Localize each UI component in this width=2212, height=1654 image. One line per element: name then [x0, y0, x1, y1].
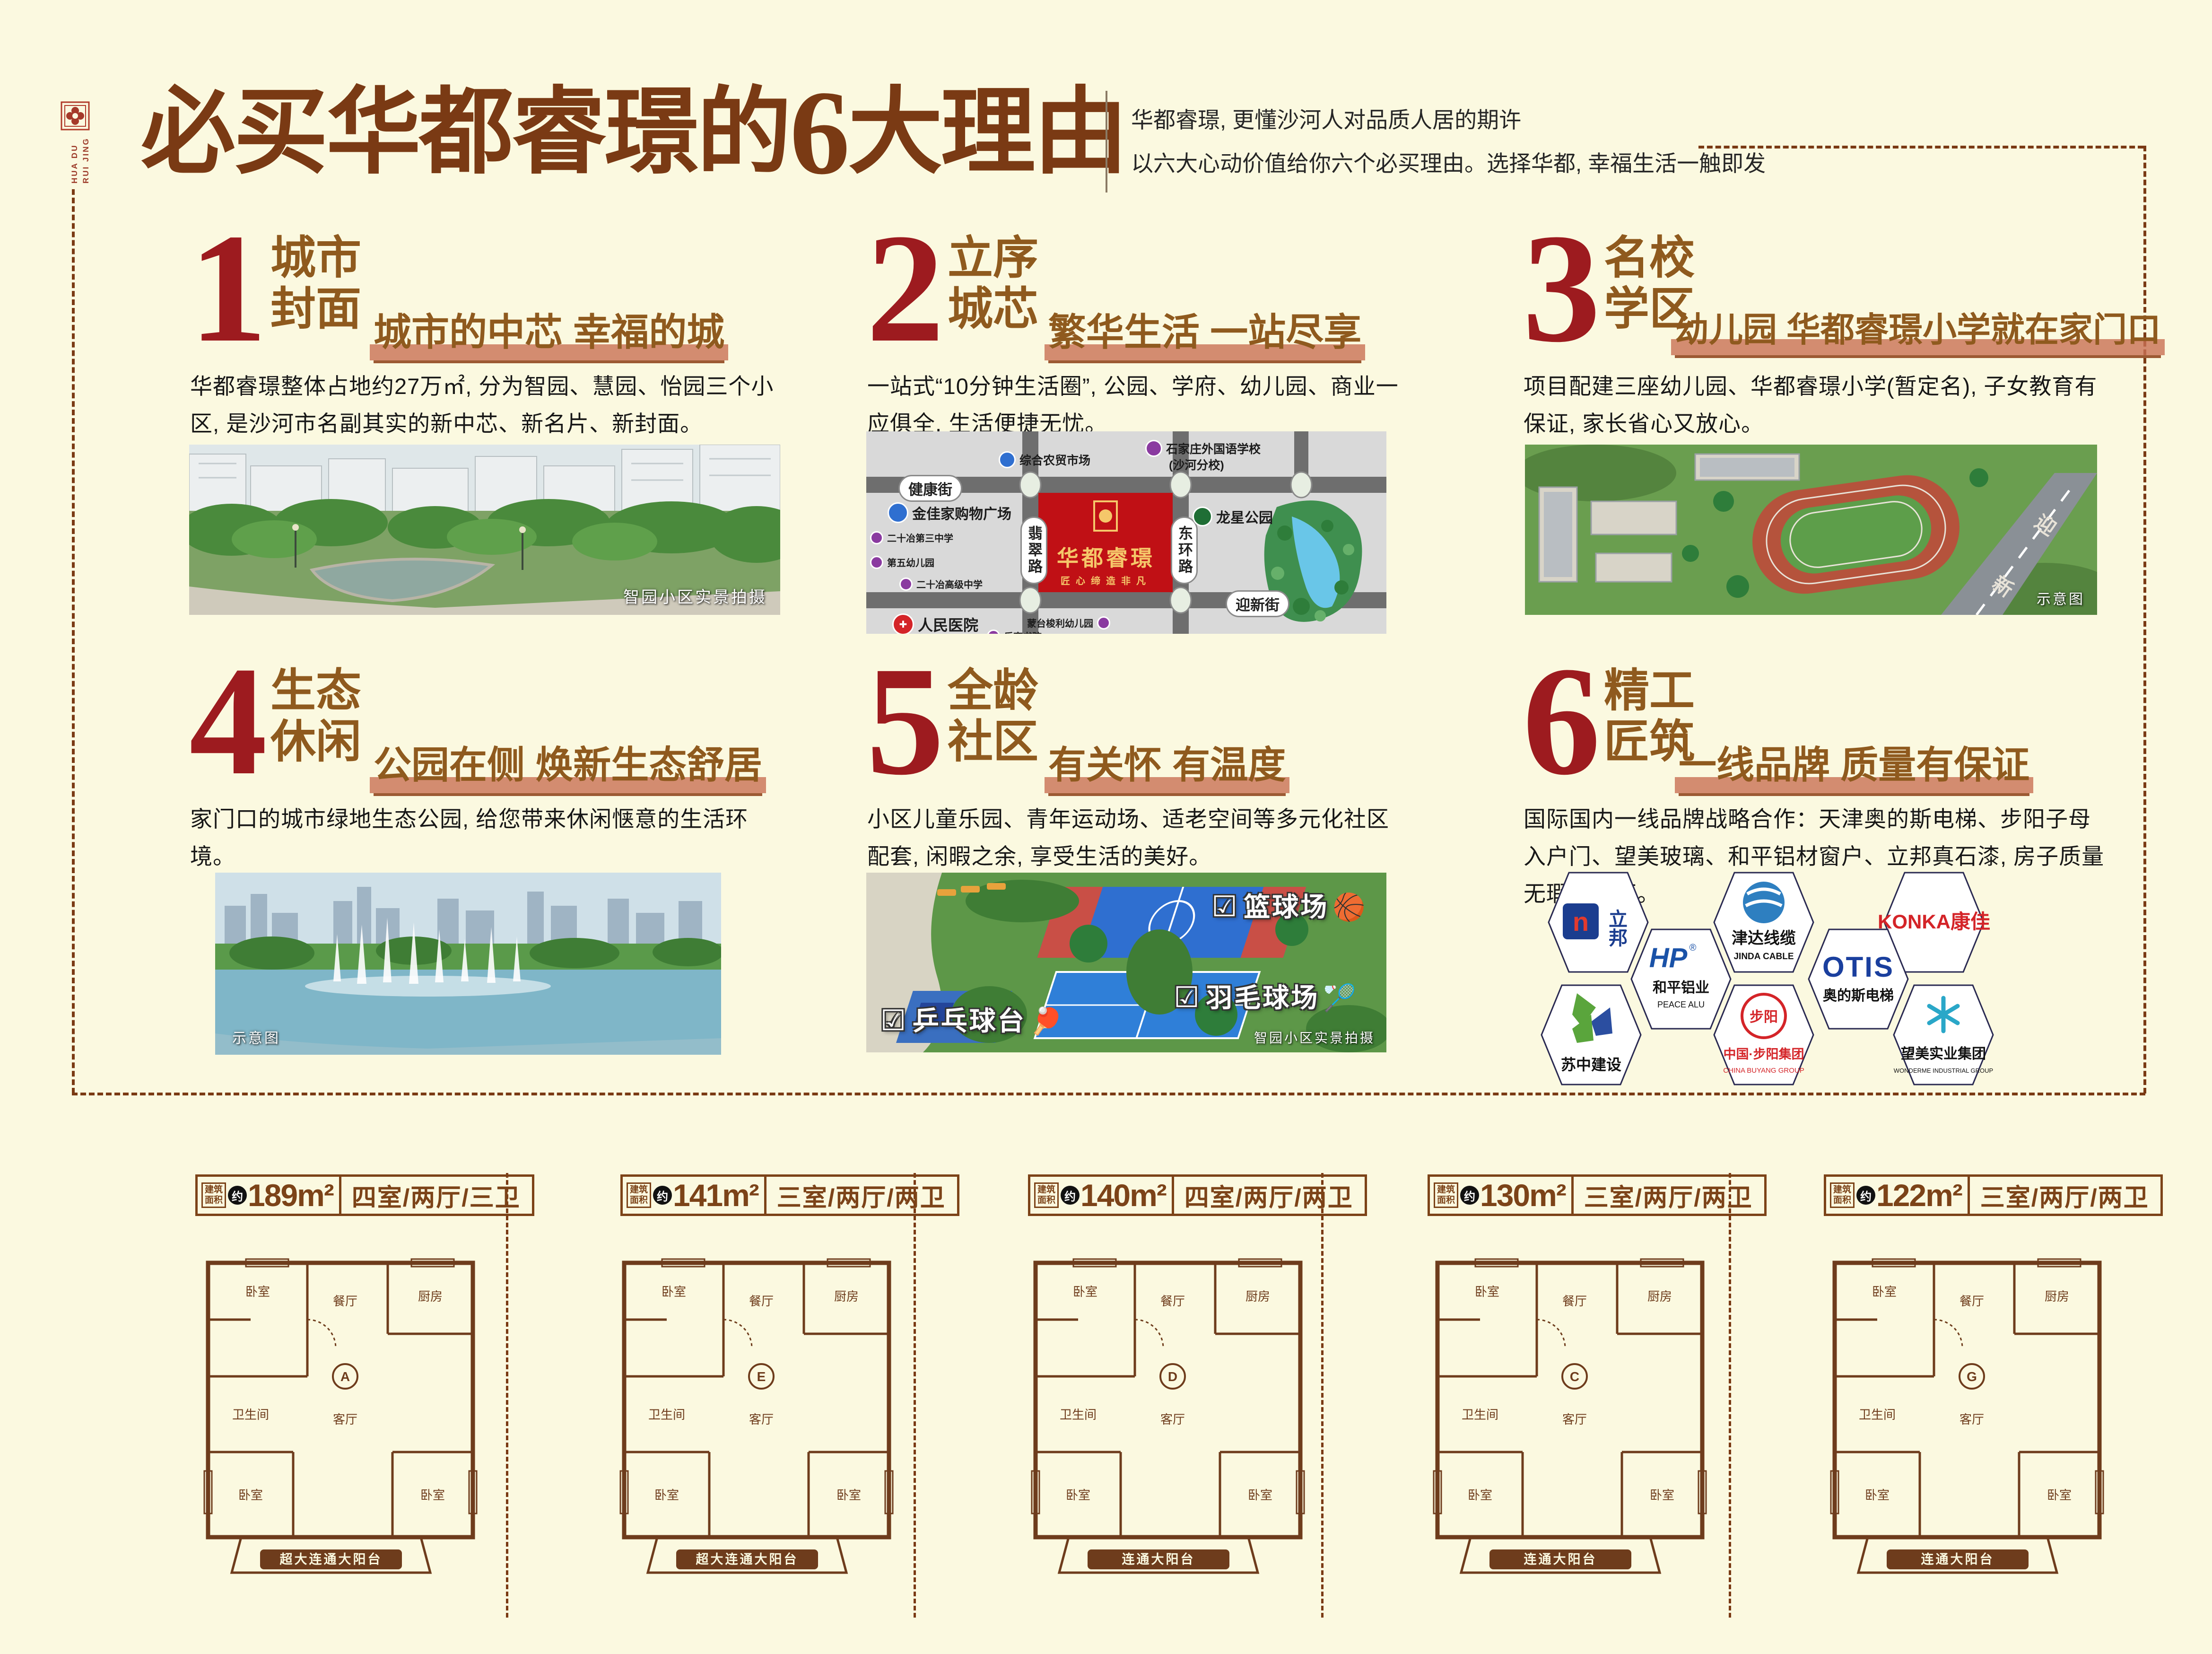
svg-text:卧室: 卧室 [1468, 1488, 1492, 1502]
brand-name: 苏中建设 [1561, 1056, 1621, 1073]
poi-label: 龙星公园 [1216, 506, 1273, 527]
svg-text:卧室: 卧室 [1066, 1488, 1090, 1502]
svg-text:卫生间: 卫生间 [232, 1408, 269, 1422]
poi-label: 二十冶高级中学 [916, 577, 983, 591]
svg-text:卧室: 卧室 [1248, 1488, 1272, 1502]
svg-text:餐厅: 餐厅 [1562, 1294, 1587, 1308]
sports-courts-photo: ☑篮球场🏀 ☑羽毛球场🏸 ☑乒乓球台🏓 智园小区实景拍摄 [866, 873, 1386, 1052]
registered-icon: ® [1689, 943, 1697, 953]
approx-badge: 约 [1856, 1186, 1875, 1205]
reason-subtitle: 有关怀 有温度 [1048, 735, 1286, 796]
reason-subtitle: 繁华生活 一站尽享 [1048, 302, 1361, 363]
park-icon [1193, 507, 1212, 526]
svg-text:卫生间: 卫生间 [1060, 1408, 1097, 1422]
dashed-border-left [72, 189, 75, 1094]
svg-text:A: A [340, 1369, 350, 1384]
svg-text:超大连通大阳台: 超大连通大阳台 [280, 1552, 383, 1566]
poi-label: 蒙台梭利幼儿园 [1027, 616, 1093, 630]
header-divider [1106, 91, 1107, 193]
svg-text:客厅: 客厅 [749, 1412, 774, 1426]
svg-text:餐厅: 餐厅 [333, 1294, 357, 1308]
poi-label: 金佳家购物广场 [912, 502, 1011, 523]
brand-name: 和平铝业 [1653, 980, 1709, 996]
checkbox-icon: ☑ [1174, 981, 1201, 1013]
brand-name-en: WONDERME INDUSTRIAL GROUP [1894, 1067, 1993, 1074]
svg-text:连通大阳台: 连通大阳台 [1921, 1552, 1994, 1566]
park-fountain-photo: 示意图 [215, 873, 721, 1055]
checkbox-icon: ☑ [880, 1005, 908, 1036]
photo-caption: 智园小区实景拍摄 [1254, 1028, 1375, 1047]
checkbox-icon: ☑ [1211, 891, 1239, 922]
svg-text:E: E [757, 1369, 766, 1384]
reason-5-all-age-community: 5 全龄 社区 有关怀 有温度 小区儿童乐园、青年运动场、适老空间等多元化社区配… [866, 655, 1410, 1055]
reason-4-eco-leisure: 4 生态 休闲 公园在侧 焕新生态舒居 家门口的城市绿地生态公园, 给您带来休闲… [189, 655, 780, 1055]
floorplan-4-label: 建筑面积 约 130m² 三室/两厅/两卫 [1428, 1174, 1767, 1216]
badminton-court-label: ☑羽毛球场🏸 [1174, 977, 1358, 1015]
svg-text:连通大阳台: 连通大阳台 [1122, 1552, 1195, 1566]
svg-text:餐厅: 餐厅 [749, 1294, 774, 1308]
map-project-name: 华都睿璟 [1040, 541, 1172, 572]
reason-subtitle: 城市的中芯 幸福的城 [374, 302, 724, 363]
svg-text:卧室: 卧室 [662, 1285, 686, 1299]
market-icon [999, 451, 1016, 468]
reason-number: 3 [1523, 222, 1601, 355]
approx-badge: 约 [653, 1186, 672, 1205]
brand-name-en: JINDA CABLE [1733, 952, 1794, 962]
school-icon [870, 556, 883, 569]
poi-label: (沙河分校) [1169, 456, 1224, 473]
road-label-yingxin: 迎新街 [1226, 590, 1289, 617]
poi-label: 二十冶第三中学 [887, 531, 953, 544]
location-map: 华都睿璟 匠心缔造非凡 健康街 迎新街 翡翠路 东环路 综合农贸市场 石家庄外国… [866, 431, 1386, 634]
brand-konka: KONKA康佳 [1878, 910, 1990, 933]
map-project-tagline: 匠心缔造非凡 [1040, 573, 1172, 587]
svg-text:卧室: 卧室 [836, 1488, 861, 1502]
poi-label: 综合农贸市场 [1019, 451, 1090, 468]
community-photo: 智园小区实景拍摄 [189, 445, 780, 615]
reason-2-location: 2 立序 城芯 繁华生活 一站尽享 一站式“10分钟生活圈”, 公园、学府、幼儿… [866, 222, 1410, 615]
logo-line2: RUI JING [81, 127, 91, 184]
reason-number: 2 [866, 222, 944, 355]
brand-name-en: CHINA BUYANG GROUP [1723, 1067, 1804, 1075]
mall-icon [888, 502, 908, 523]
page-title: 必买华都睿璟的6大理由 [141, 61, 1110, 205]
svg-text:卧室: 卧室 [654, 1488, 679, 1502]
floorplan-separator [506, 1173, 508, 1618]
svg-text:D: D [1168, 1369, 1177, 1384]
floorplan-layout: 四室/两厅/三卫 [341, 1178, 531, 1213]
otis-mark: OTIS [1822, 951, 1894, 983]
svg-text:餐厅: 餐厅 [1959, 1294, 1984, 1308]
floorplan-separator [914, 1173, 916, 1618]
logo-line1: HUA DU [70, 127, 79, 184]
svg-text:客厅: 客厅 [333, 1412, 357, 1426]
basketball-icon: 🏀 [1332, 892, 1367, 922]
poster-canvas: HUA DU RUI JING 必买华都睿璟的6大理由 华都睿璟, 更懂沙河人对… [0, 0, 2212, 1654]
svg-text:卧室: 卧室 [1650, 1488, 1674, 1502]
reason-subtitle: 一线品牌 质量有保证 [1679, 735, 2029, 796]
svg-text:卧室: 卧室 [1865, 1488, 1890, 1502]
svg-text:卧室: 卧室 [238, 1488, 263, 1502]
peace-mark: HP [1649, 943, 1688, 973]
approx-badge: 约 [1061, 1186, 1080, 1205]
pingpong-table-label: ☑乒乓球台🏓 [880, 1000, 1065, 1038]
svg-text:客厅: 客厅 [1160, 1412, 1185, 1426]
floorplan-1-drawing: 卧室 厨房 餐厅 卫生间 客厅 卧室 卧室 A 超大连通大阳台 [189, 1234, 492, 1606]
road-label-jiankang: 健康街 [898, 475, 962, 502]
academy-icon [987, 630, 1000, 634]
subtitle-line2: 以六大心动价值给你六个必买理由。选择华都, 幸福生活一触即发 [1131, 142, 1766, 185]
svg-text:卧室: 卧室 [1073, 1285, 1097, 1299]
pingpong-icon: 🏓 [1030, 1006, 1065, 1036]
svg-text:G: G [1967, 1369, 1977, 1384]
svg-text:客厅: 客厅 [1562, 1412, 1587, 1426]
svg-text:卫生间: 卫生间 [648, 1408, 685, 1422]
approx-badge: 约 [1460, 1186, 1479, 1205]
svg-text:超大连通大阳台: 超大连通大阳台 [696, 1552, 799, 1566]
brand-name: 津达线缆 [1732, 929, 1796, 947]
reason-title: 立序 城芯 [948, 233, 1038, 334]
kindergarten-icon [1097, 616, 1110, 630]
floorplan-5-label: 建筑面积 约 122m² 三室/两厅/两卫 [1824, 1174, 2163, 1216]
svg-text:厨房: 厨房 [2045, 1289, 2069, 1304]
reason-subtitle: 幼儿园 华都睿璟小学就在家门口 [1675, 302, 2161, 358]
floorplan-layout: 三室/两厅/两卫 [1574, 1178, 1763, 1213]
buyang-mark: 步阳 [1750, 1009, 1778, 1025]
reason-number: 4 [189, 655, 267, 788]
reason-title: 生态 休闲 [270, 665, 361, 767]
brand-logos-honeycomb: n 立邦 津达线缆 JINDA CABLE KONKA康佳 HP ® 和 [1537, 866, 2066, 1088]
svg-text:卧室: 卧室 [245, 1285, 270, 1299]
school-icon [870, 531, 883, 544]
approx-badge: 约 [228, 1186, 247, 1205]
floorplan-3-label: 建筑面积 约 140m² 四室/两厅/两卫 [1028, 1174, 1367, 1216]
brand-name: 奥的斯电梯 [1823, 988, 1894, 1004]
svg-text:客厅: 客厅 [1959, 1412, 1984, 1426]
reason-number: 1 [189, 222, 267, 355]
reason-description: 小区儿童乐园、青年运动场、适老空间等多元化社区配套, 闲暇之余, 享受生活的美好… [867, 801, 1406, 875]
kindergarten-icon [899, 578, 913, 591]
floorplan-layout: 三室/两厅/两卫 [766, 1178, 956, 1213]
floorplan-2-drawing: 卧室 厨房 餐厅 卫生间 客厅 卧室 卧室 E 超大连通大阳台 [605, 1234, 908, 1606]
svg-text:厨房: 厨房 [418, 1289, 443, 1304]
svg-text:卧室: 卧室 [2047, 1488, 2072, 1502]
floorplan-4-drawing: 卧室 厨房 餐厅 卫生间 客厅 卧室 卧室 C 连通大阳台 [1419, 1234, 1721, 1606]
dashed-border-top [1698, 146, 2143, 149]
poi-label: 乐育书院 [1004, 629, 1042, 634]
poi-label: 人民医院 [918, 613, 978, 634]
reason-number: 6 [1523, 655, 1601, 788]
svg-text:卫生间: 卫生间 [1859, 1408, 1896, 1422]
brand-name: 立邦 [1606, 909, 1627, 947]
reason-3-school-district: 3 名校 学区 幼儿园 华都睿璟小学就在家门口 项目配建三座幼儿园、华都睿璟小学… [1523, 222, 2118, 615]
svg-text:卧室: 卧室 [1872, 1285, 1897, 1299]
poi-label: 石家庄外国语学校 [1166, 440, 1261, 457]
floorplan-area: 140m² [1080, 1177, 1172, 1213]
brand-name-en: PEACE ALU [1657, 1000, 1705, 1009]
svg-text:厨房: 厨房 [1647, 1289, 1672, 1304]
photo-caption: 智园小区实景拍摄 [623, 584, 767, 607]
school-aerial-rendering: 迎 新 示意图 [1525, 445, 2097, 615]
brand-otis: OTIS 奥的斯电梯 [1822, 951, 1894, 1004]
basketball-court-label: ☑篮球场🏀 [1211, 886, 1367, 924]
rendering-caption: 示意图 [232, 1026, 280, 1047]
floorplan-separator [1729, 1173, 1731, 1618]
floorplan-separator [1321, 1173, 1324, 1618]
svg-text:C: C [1570, 1369, 1579, 1384]
floorplan-layout: 四室/两厅/两卫 [1174, 1178, 1364, 1213]
reason-1-city-cover: 1 城市 封面 城市的中芯 幸福的城 华都睿璟整体占地约27万㎡, 分为智园、慧… [189, 222, 780, 615]
svg-text:卧室: 卧室 [1475, 1285, 1499, 1299]
reason-number: 5 [866, 655, 944, 788]
floorplan-area: 122m² [1876, 1177, 1968, 1213]
subtitle-line1: 华都睿璟, 更懂沙河人对品质人居的期许 [1131, 98, 1766, 142]
svg-text:厨房: 厨房 [1245, 1289, 1270, 1304]
reason-title: 全龄 社区 [948, 665, 1038, 767]
reason-title: 城市 封面 [270, 233, 361, 334]
floorplan-2-label: 建筑面积 约 141m² 三室/两厅/两卫 [620, 1174, 959, 1216]
poi-label: 第五幼儿园 [887, 555, 934, 569]
reason-6-quality-brands: 6 精工 匠筑 一线品牌 质量有保证 国际国内一线品牌战略合作：天津奥的斯电梯、… [1523, 655, 2118, 1055]
dashed-border-right [2143, 146, 2146, 1094]
floorplan-area: 189m² [248, 1177, 339, 1213]
brand-name: 中国·步阳集团 [1724, 1047, 1804, 1061]
svg-text:连通大阳台: 连通大阳台 [1524, 1552, 1597, 1566]
huadu-ruijing-logo-icon [61, 101, 90, 131]
reason-subtitle: 公园在侧 焕新生态舒居 [374, 735, 762, 796]
svg-text:餐厅: 餐厅 [1160, 1294, 1185, 1308]
header-subtitle: 华都睿璟, 更懂沙河人对品质人居的期许 以六大心动价值给你六个必买理由。选择华都… [1131, 98, 1766, 185]
floorplan-area: 130m² [1480, 1177, 1571, 1213]
reason-description: 华都睿璟整体占地约27万㎡, 分为智园、慧园、怡园三个小区, 是沙河市名副其实的… [190, 368, 781, 443]
brand-name: 望美实业集团 [1901, 1046, 1986, 1062]
svg-text:卧室: 卧室 [420, 1488, 445, 1502]
floorplan-5-drawing: 卧室 厨房 餐厅 卫生间 客厅 卧室 卧室 G 连通大阳台 [1816, 1234, 2118, 1606]
hospital-cross-icon: ✚ [892, 613, 914, 634]
svg-text:卫生间: 卫生间 [1462, 1408, 1498, 1422]
svg-text:厨房: 厨房 [834, 1289, 859, 1304]
floorplan-layout: 三室/两厅/两卫 [1970, 1178, 2160, 1213]
badminton-icon: 🏸 [1323, 983, 1358, 1013]
road-label-feicui: 翡翠路 [1020, 516, 1047, 584]
floorplan-3-drawing: 卧室 厨房 餐厅 卫生间 客厅 卧室 卧室 D 连通大阳台 [1017, 1234, 1319, 1606]
reason-description: 项目配建三座幼儿园、华都睿璟小学(暂定名), 子女教育有保证, 家长省心又放心。 [1524, 368, 2105, 443]
title-number: 6 [790, 66, 848, 200]
dashed-border-bottom [72, 1093, 2145, 1095]
floorplan-1-label: 建筑面积 约 189m² 四室/两厅/三卫 [195, 1174, 534, 1216]
logo-wordmark: HUA DU RUI JING [70, 127, 98, 188]
nippon-mark: n [1573, 907, 1589, 936]
reason-description: 家门口的城市绿地生态公园, 给您带来休闲惬意的生活环境。 [190, 801, 781, 875]
floorplan-area: 141m² [673, 1177, 764, 1213]
school-icon [1145, 440, 1162, 457]
rendering-caption: 示意图 [2037, 587, 2085, 608]
